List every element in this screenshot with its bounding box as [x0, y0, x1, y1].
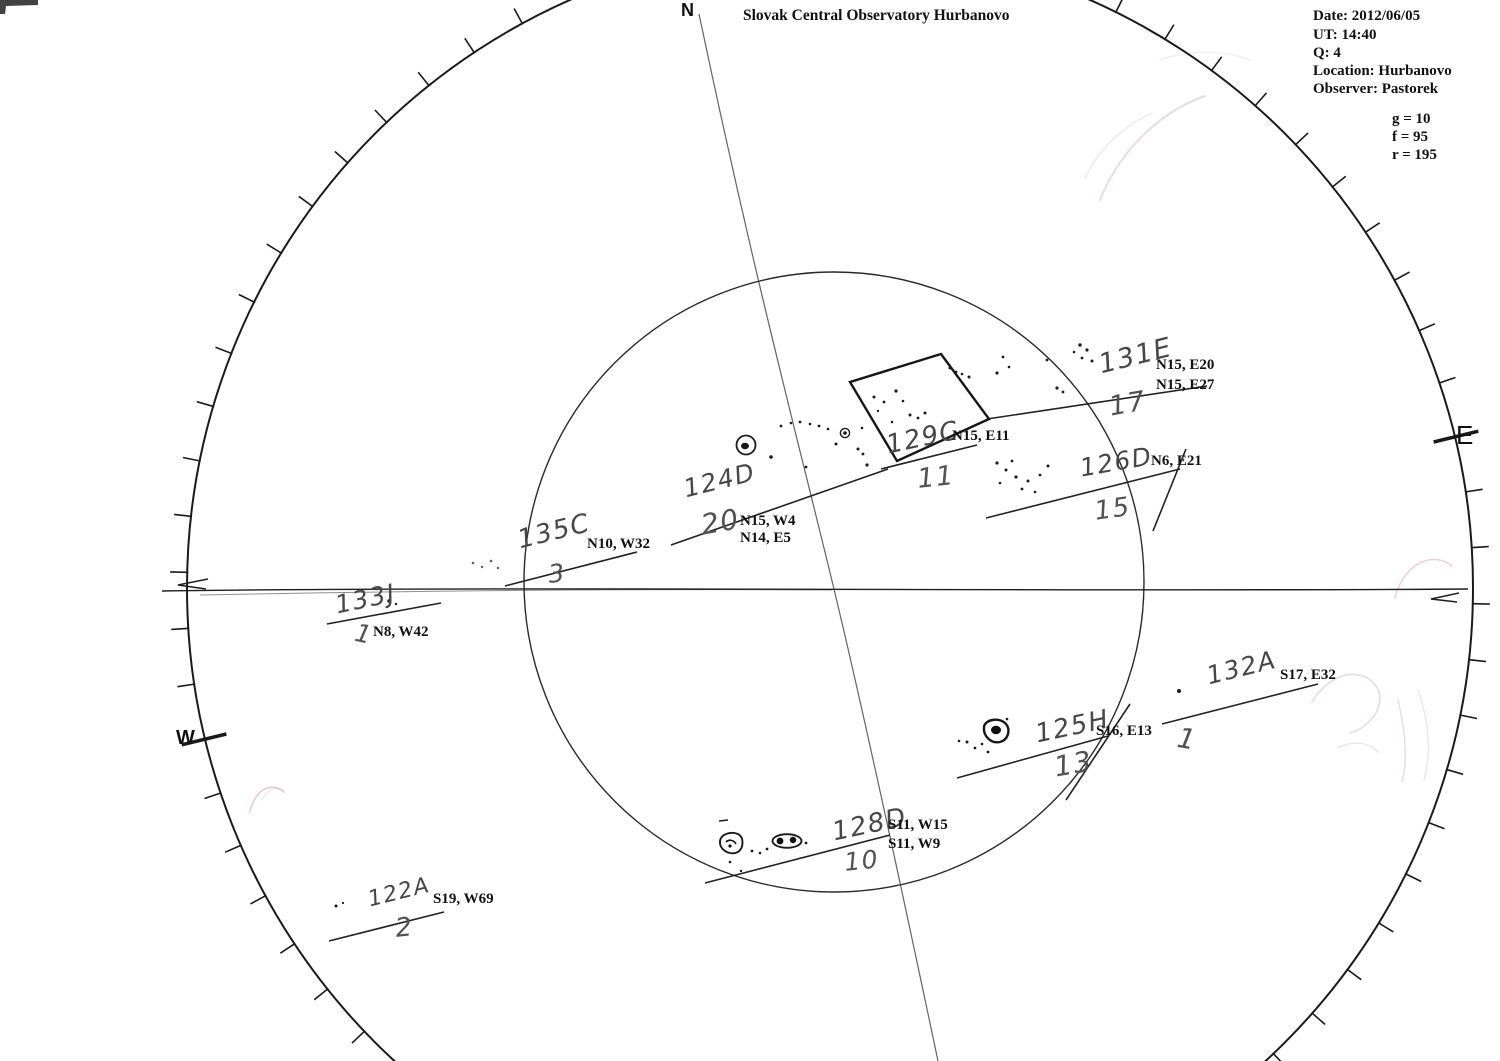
info-observer: Observer: Pastorek	[1313, 80, 1438, 98]
rim-tick	[225, 845, 242, 852]
rim-tick	[1365, 223, 1380, 233]
stat-g: g = 10	[1392, 110, 1431, 128]
sunspot-group-126D	[995, 460, 1049, 494]
rim-tick	[174, 514, 192, 516]
group-122A-coord-1: S19, W69	[433, 890, 494, 908]
pointer-122A	[329, 912, 444, 941]
info-q: Q: 4	[1313, 44, 1341, 62]
rim-tick	[251, 895, 267, 904]
group-128D-coord-1: S11, W15	[888, 816, 948, 834]
rim-tick	[1211, 57, 1222, 72]
pointer-132A	[1162, 684, 1318, 724]
rim-tick	[1439, 378, 1456, 384]
rim-tick	[514, 9, 523, 25]
rim-tick	[375, 110, 387, 123]
sunspot-group-122A	[335, 902, 345, 908]
rim-tick	[1428, 822, 1445, 829]
rim-tick	[314, 989, 328, 1000]
rim-tick	[1347, 969, 1362, 980]
north-label: N	[681, 0, 694, 21]
info-location: Location: Hurbanovo	[1313, 62, 1452, 80]
rim-tick	[280, 943, 295, 953]
rim-tick	[1312, 1013, 1326, 1025]
rim-tick	[335, 152, 349, 164]
group-128D-count: 10	[843, 846, 880, 875]
group-128D-coord-2: S11, W9	[888, 835, 940, 853]
group-124D-coord-1: N15, W4	[740, 512, 796, 530]
group-129C-coord-1: N15, E11	[952, 427, 1010, 445]
observatory-title: Slovak Central Observatory Hurbanovo	[743, 7, 1010, 25]
rim-tick	[418, 72, 429, 86]
group-131E-coord-2: N15, E27	[1156, 376, 1214, 394]
sunspot-group-131E	[949, 343, 1094, 393]
rim-tick	[1165, 25, 1174, 40]
rim-tick	[1471, 547, 1489, 548]
rim-tick	[465, 38, 475, 53]
faint-smudges	[250, 52, 1452, 812]
group-129C-count: 11	[916, 462, 956, 493]
rim-tick	[1418, 324, 1435, 331]
equator-east-arrow	[1431, 593, 1459, 602]
info-date: Date: 2012/06/05	[1313, 7, 1420, 25]
rim-tick	[1295, 133, 1308, 145]
rim-tick	[1446, 769, 1463, 774]
rim-tick	[216, 347, 233, 354]
group-135C-coord-1: N10, W32	[587, 535, 650, 553]
group-126D-count: 15	[1093, 494, 1132, 525]
group-126D-coord-1: N6, E21	[1151, 452, 1202, 470]
group-131E-coord-1: N15, E20	[1156, 356, 1214, 374]
west-label: W	[176, 727, 195, 750]
group-124D-coord-2: N14, E5	[740, 529, 791, 547]
rim-tick	[1459, 715, 1477, 719]
rim-tick	[1394, 272, 1410, 281]
stat-f: f = 95	[1392, 128, 1428, 146]
sunspot-group-135C	[472, 560, 499, 570]
group-125H-count: 13	[1052, 747, 1095, 781]
polar-axis-line	[699, 14, 938, 1061]
equator-west-arrow	[178, 579, 208, 589]
group-135C-count: 3	[547, 560, 567, 587]
group-131E-count: 17	[1107, 388, 1148, 421]
group-132A-coord-1: S17, E32	[1280, 666, 1336, 684]
rim-tick	[171, 628, 189, 629]
rim-tick	[1255, 93, 1267, 107]
rim-tick	[1468, 660, 1486, 662]
scan-artifact	[0, 0, 38, 14]
rim-tick	[1465, 489, 1483, 492]
inner-reference-circle	[524, 272, 1144, 892]
sunspot-group-128D	[719, 820, 807, 872]
info-ut: UT: 14:40	[1313, 26, 1376, 44]
rim-tick	[1116, 0, 1124, 13]
sunspot-group-125H	[958, 718, 1009, 754]
rim-tick	[239, 295, 255, 303]
rim-tick	[197, 402, 214, 407]
east-label: E	[1456, 420, 1473, 451]
rim-tick	[1273, 1053, 1285, 1061]
sunspot-observation-sheet: Slovak Central Observatory Hurbanovo N E…	[0, 0, 1500, 1061]
sunspot-group-132A	[1177, 689, 1181, 693]
rim-tick	[177, 684, 195, 687]
rim-tick	[1332, 176, 1346, 187]
group-133J-coord-1: N8, W42	[373, 623, 429, 641]
rim-tick	[1378, 923, 1393, 932]
rim-tick	[267, 244, 282, 253]
group-125H-coord-1: S16, E13	[1096, 722, 1152, 740]
rim-tick	[299, 196, 314, 207]
group-122A-count: 2	[394, 914, 415, 942]
sunspots	[335, 343, 1182, 907]
group-124D-count: 20	[699, 505, 742, 539]
rim-tick	[352, 1031, 365, 1043]
rim-tick	[183, 458, 201, 462]
rim-tick	[205, 793, 222, 799]
stat-r: r = 195	[1392, 146, 1437, 164]
rim-tick	[1405, 874, 1421, 882]
